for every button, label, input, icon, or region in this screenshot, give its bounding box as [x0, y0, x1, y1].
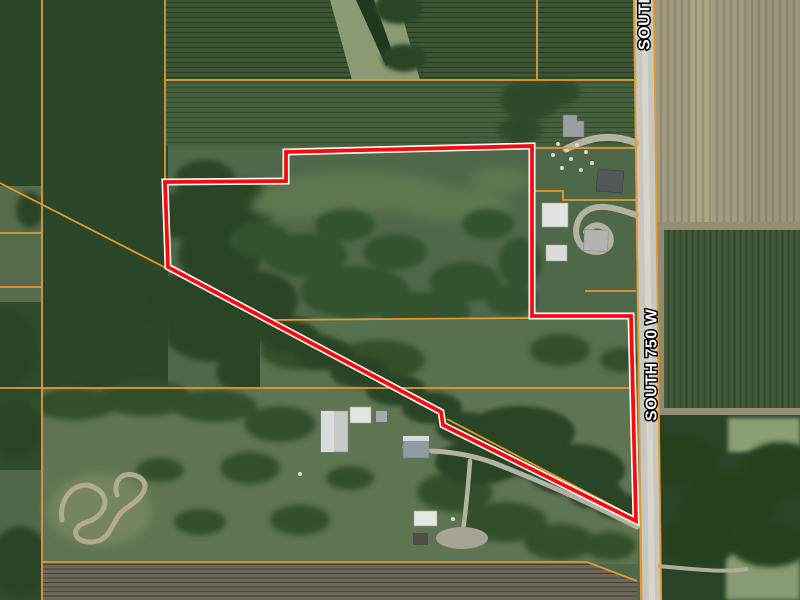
aerial-parcel-map: SOUTH 750 W SOUTH 750 W — [0, 0, 800, 600]
field-east-green — [652, 222, 800, 417]
plowed-field-south — [42, 563, 637, 600]
satellite-imagery — [0, 0, 800, 600]
road-label-south-750w: SOUTH 750 W — [644, 308, 661, 421]
field-east-tan — [652, 0, 800, 230]
parcel-line-interior-horizontal — [268, 318, 533, 320]
road-label-south-750w-top: SOUTH 750 W — [637, 0, 654, 50]
motocross-track — [48, 474, 152, 546]
map-viewport: SOUTH 750 W SOUTH 750 W — [0, 0, 800, 600]
